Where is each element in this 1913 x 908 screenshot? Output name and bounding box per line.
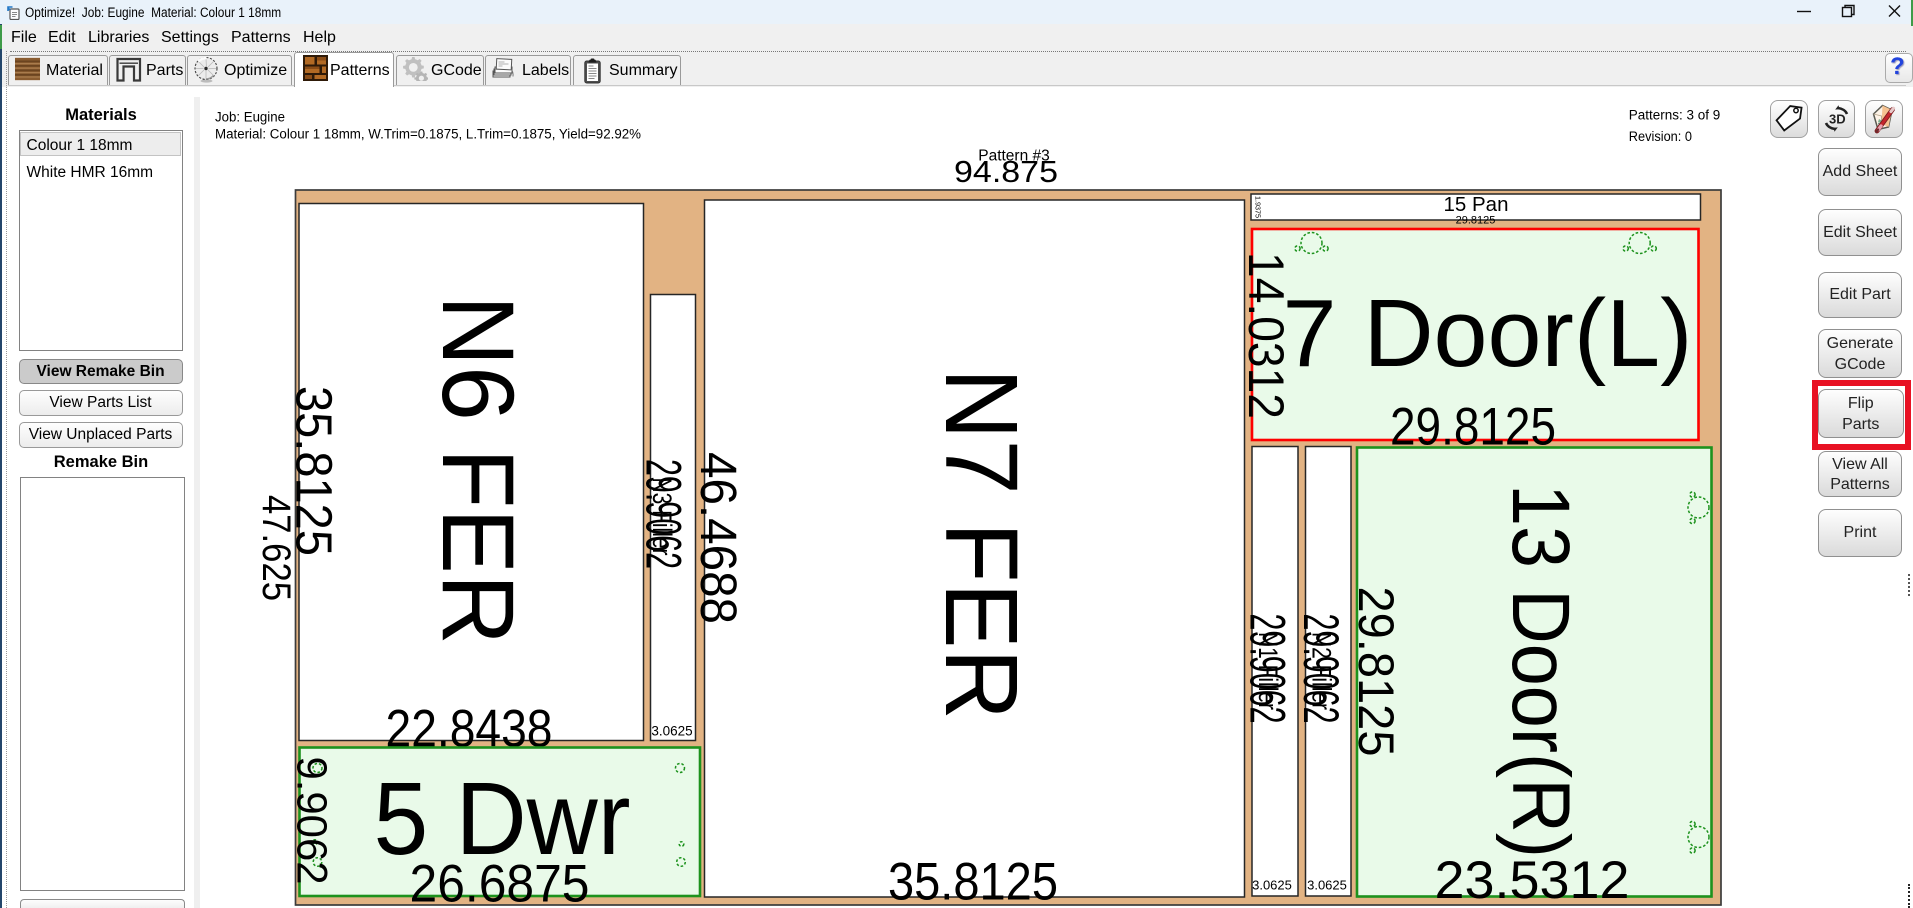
svg-text:Revision: 0: Revision: 0 bbox=[1629, 129, 1692, 144]
svg-text:N3 Filler: N3 Filler bbox=[647, 478, 677, 556]
svg-text:N7 FER: N7 FER bbox=[924, 368, 1039, 720]
svg-text:26.6875: 26.6875 bbox=[410, 855, 590, 908]
svg-text:3.0625: 3.0625 bbox=[651, 724, 692, 739]
svg-text:13 Door(R): 13 Door(R) bbox=[1495, 484, 1586, 858]
svg-text:23.5312: 23.5312 bbox=[1435, 851, 1630, 908]
svg-text:N6 FER: N6 FER bbox=[421, 295, 535, 645]
svg-text:14.0312: 14.0312 bbox=[1238, 252, 1294, 419]
svg-text:94.875: 94.875 bbox=[954, 154, 1058, 189]
svg-text:Patterns: 3 of 9: Patterns: 3 of 9 bbox=[1629, 108, 1720, 123]
svg-text:9.9062: 9.9062 bbox=[288, 757, 335, 885]
svg-text:Job: Eugine: Job: Eugine bbox=[215, 110, 285, 125]
svg-text:N1 Filler: N1 Filler bbox=[1253, 632, 1283, 710]
svg-text:35.8125: 35.8125 bbox=[888, 853, 1058, 908]
svg-text:1.9375: 1.9375 bbox=[1254, 196, 1263, 218]
svg-text:29.8125: 29.8125 bbox=[1348, 587, 1404, 757]
svg-text:3.0625: 3.0625 bbox=[1307, 878, 1347, 893]
svg-text:3.0625: 3.0625 bbox=[1252, 878, 1292, 893]
svg-text:Material: Colour 1 18mm, W.Tri: Material: Colour 1 18mm, W.Trim=0.1875, … bbox=[215, 127, 641, 142]
svg-text:7 Door(L): 7 Door(L) bbox=[1283, 280, 1693, 387]
svg-text:29.8125: 29.8125 bbox=[1456, 215, 1496, 227]
svg-text:35.8125: 35.8125 bbox=[286, 386, 343, 556]
svg-text:46.4688: 46.4688 bbox=[690, 452, 747, 624]
svg-text:15 Pan: 15 Pan bbox=[1444, 193, 1509, 216]
svg-text:N2 Filler: N2 Filler bbox=[1307, 632, 1337, 710]
